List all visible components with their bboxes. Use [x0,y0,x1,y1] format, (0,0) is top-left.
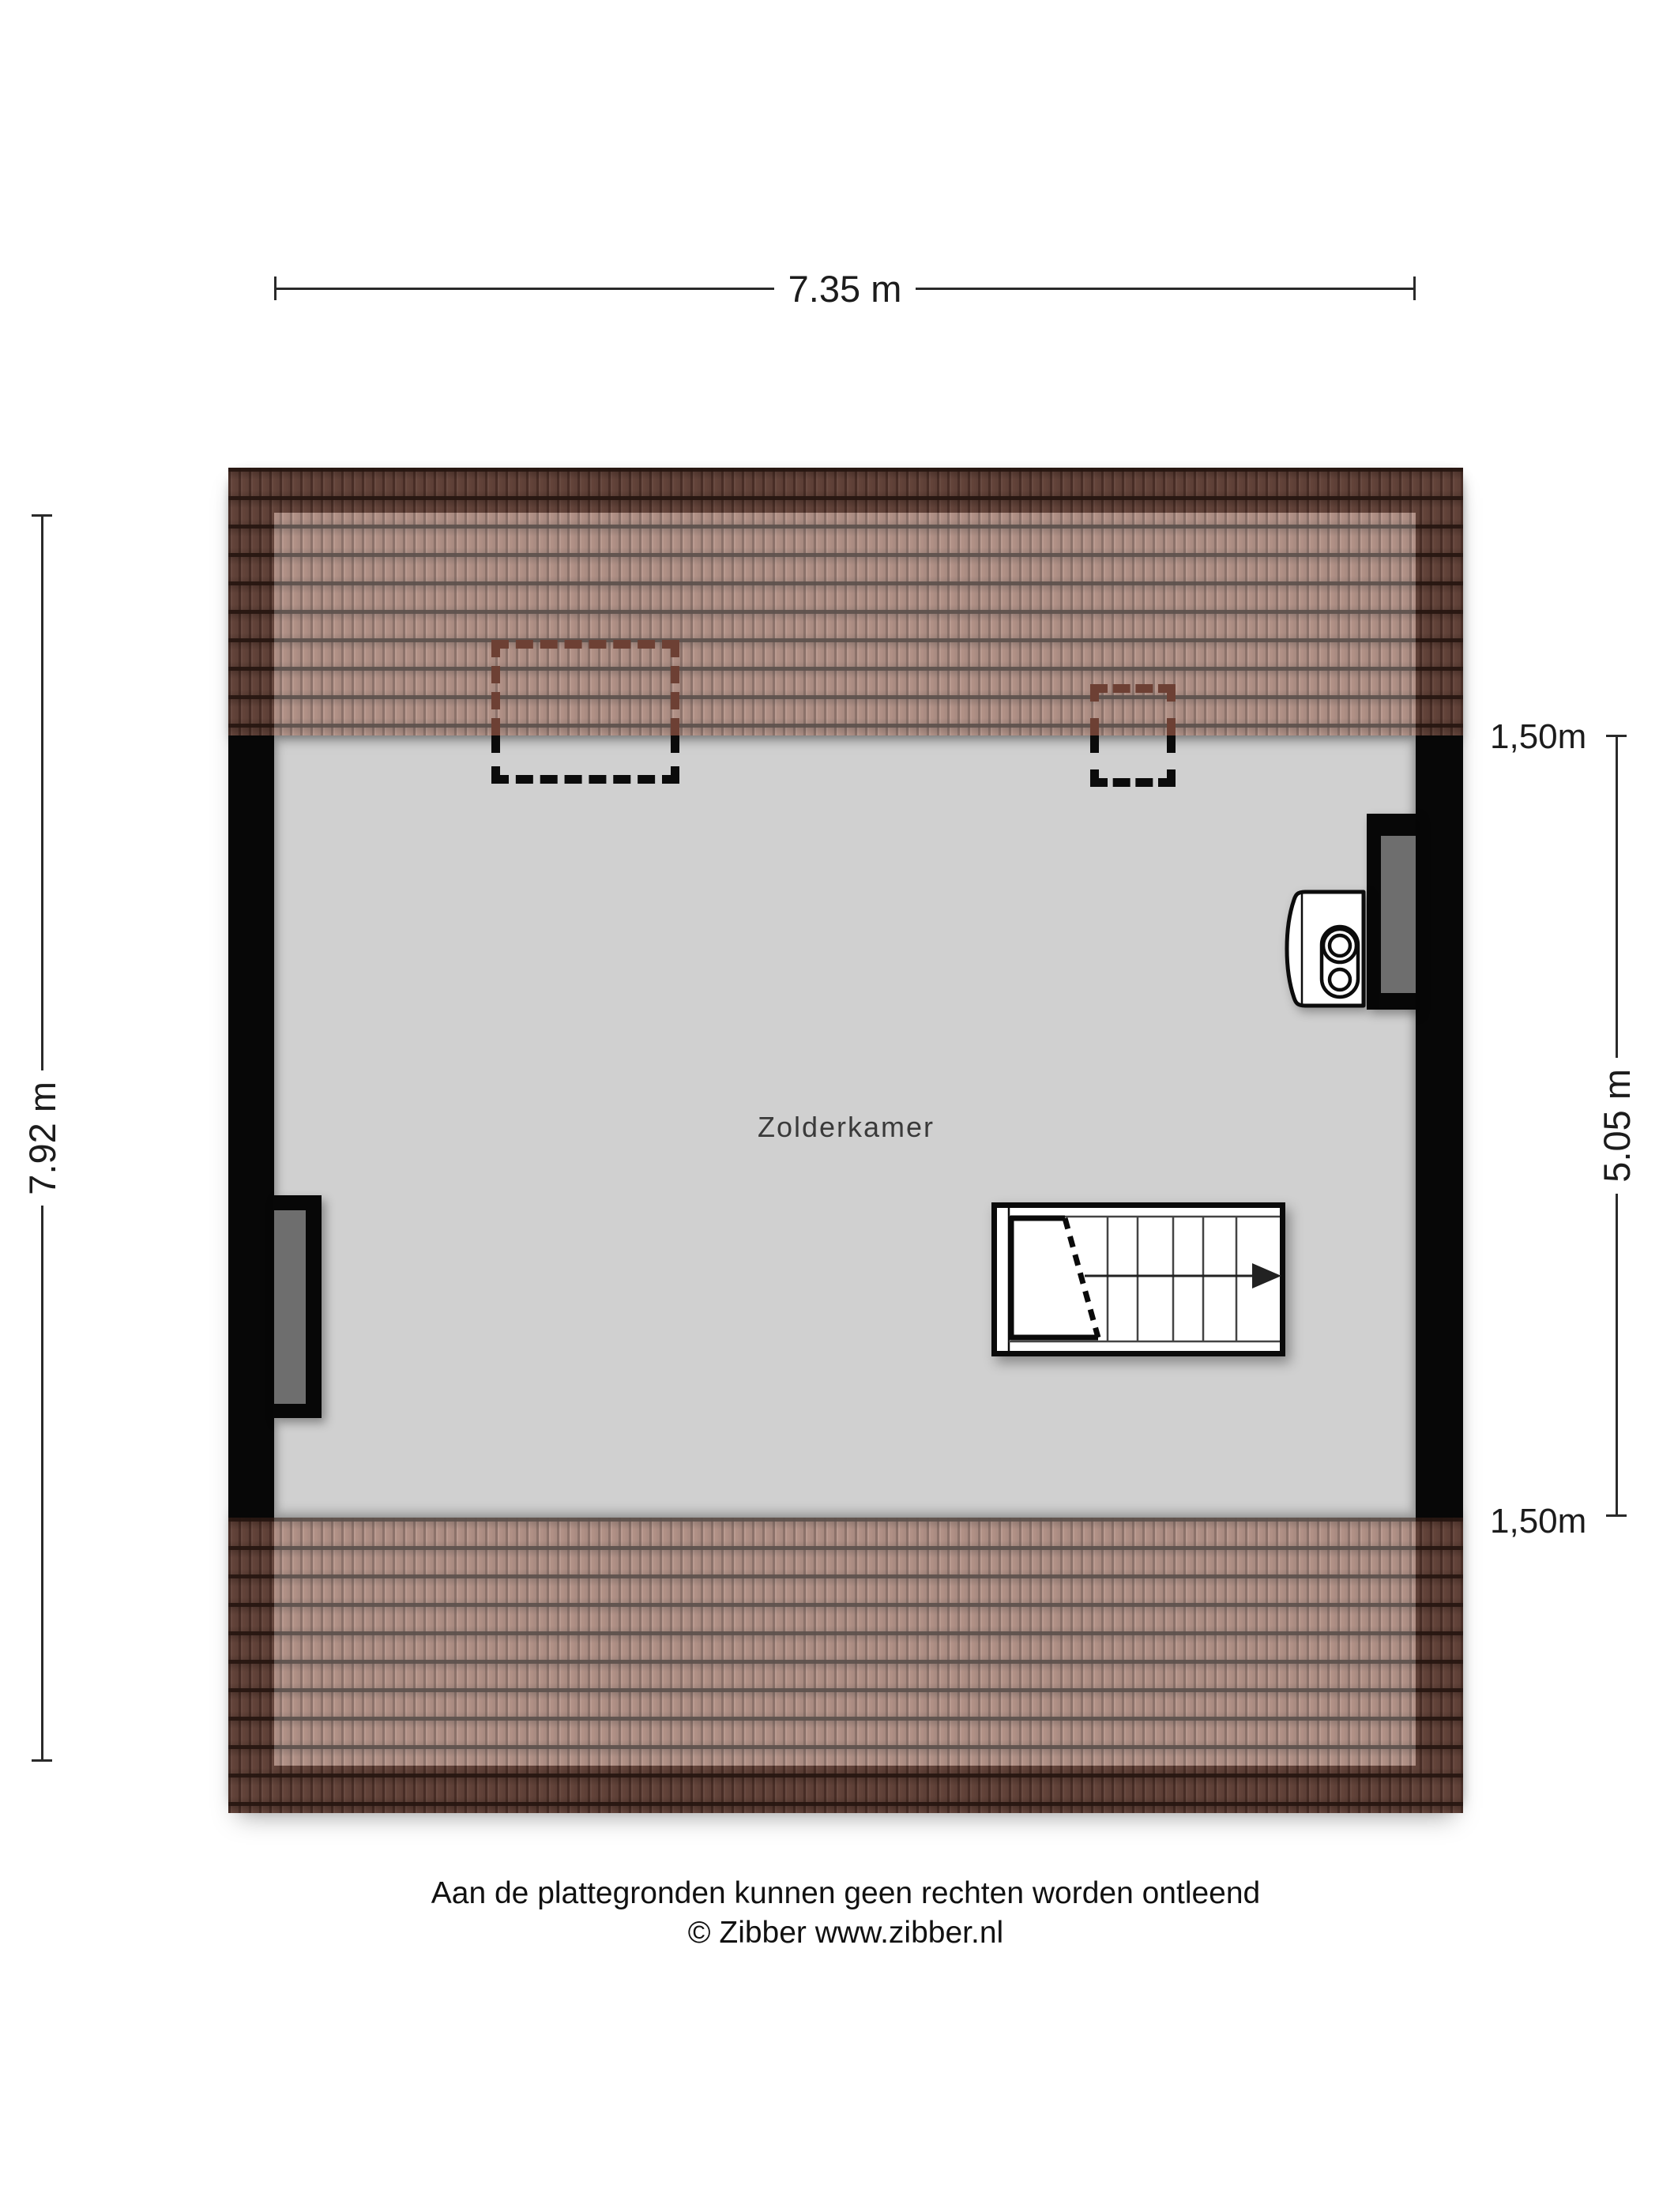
skylight-large-roof-outline [491,640,679,735]
dimension-width-label: 7.35 m [788,267,902,310]
dimension-width: 7.35 m [274,265,1416,311]
dimension-tick [1606,1514,1627,1517]
knee-wall-height-bottom: 1,50m [1490,1502,1586,1541]
staircase [991,1202,1285,1356]
window-right-pane [1381,836,1416,993]
wall-right [1416,735,1463,1518]
dimension-tick [32,1759,52,1762]
window-right [1367,814,1416,1010]
roof-top-overhang [228,468,1463,513]
roof-bottom [228,1518,1463,1813]
dimension-tick [1413,276,1416,300]
dimension-line [1616,1194,1618,1514]
dimension-depth-right-label: 5.05 m [1595,1069,1638,1183]
boiler-icon [1284,888,1367,1010]
skylight-small-floor-outline [1090,735,1176,787]
copyright-text: © Zibber www.zibber.nl [228,1913,1463,1953]
roof-bottom-overhang [228,1766,1463,1813]
window-left-pane [274,1210,306,1404]
disclaimer-text: Aan de plattegronden kunnen geen rechten… [228,1874,1463,1913]
dimension-line [41,517,43,1070]
skylight-small-roof-outline [1090,684,1176,735]
roof-bottom-interior [274,1518,1416,1766]
floor-plan: Zolderkamer [228,468,1463,1813]
wall-left [228,735,274,1518]
roof-bottom-overhang-left [228,1518,274,1766]
dimension-depth-right: 5.05 m [1596,735,1637,1517]
window-left [273,1195,322,1418]
dimension-depth-left: 7.92 m [21,514,62,1762]
dimension-line [1616,737,1618,1058]
dimension-line [916,288,1413,290]
dimension-line [276,288,774,290]
knee-wall-height-top: 1,50m [1490,717,1586,757]
roof-top-interior [274,513,1416,735]
roof-top-overhang-left [228,513,274,735]
roof-bottom-overhang-right [1416,1518,1463,1766]
skylight-large-floor-outline [491,735,679,784]
roof-top [228,468,1463,735]
dimension-line [41,1206,43,1759]
room-label: Zolderkamer [688,1108,1004,1147]
page: { "plan": { "room_label": "Zolderkamer" … [0,0,1659,2212]
footer: Aan de plattegronden kunnen geen rechten… [228,1874,1463,1953]
roof-top-overhang-right [1416,513,1463,735]
dimension-depth-left-label: 7.92 m [21,1082,64,1195]
